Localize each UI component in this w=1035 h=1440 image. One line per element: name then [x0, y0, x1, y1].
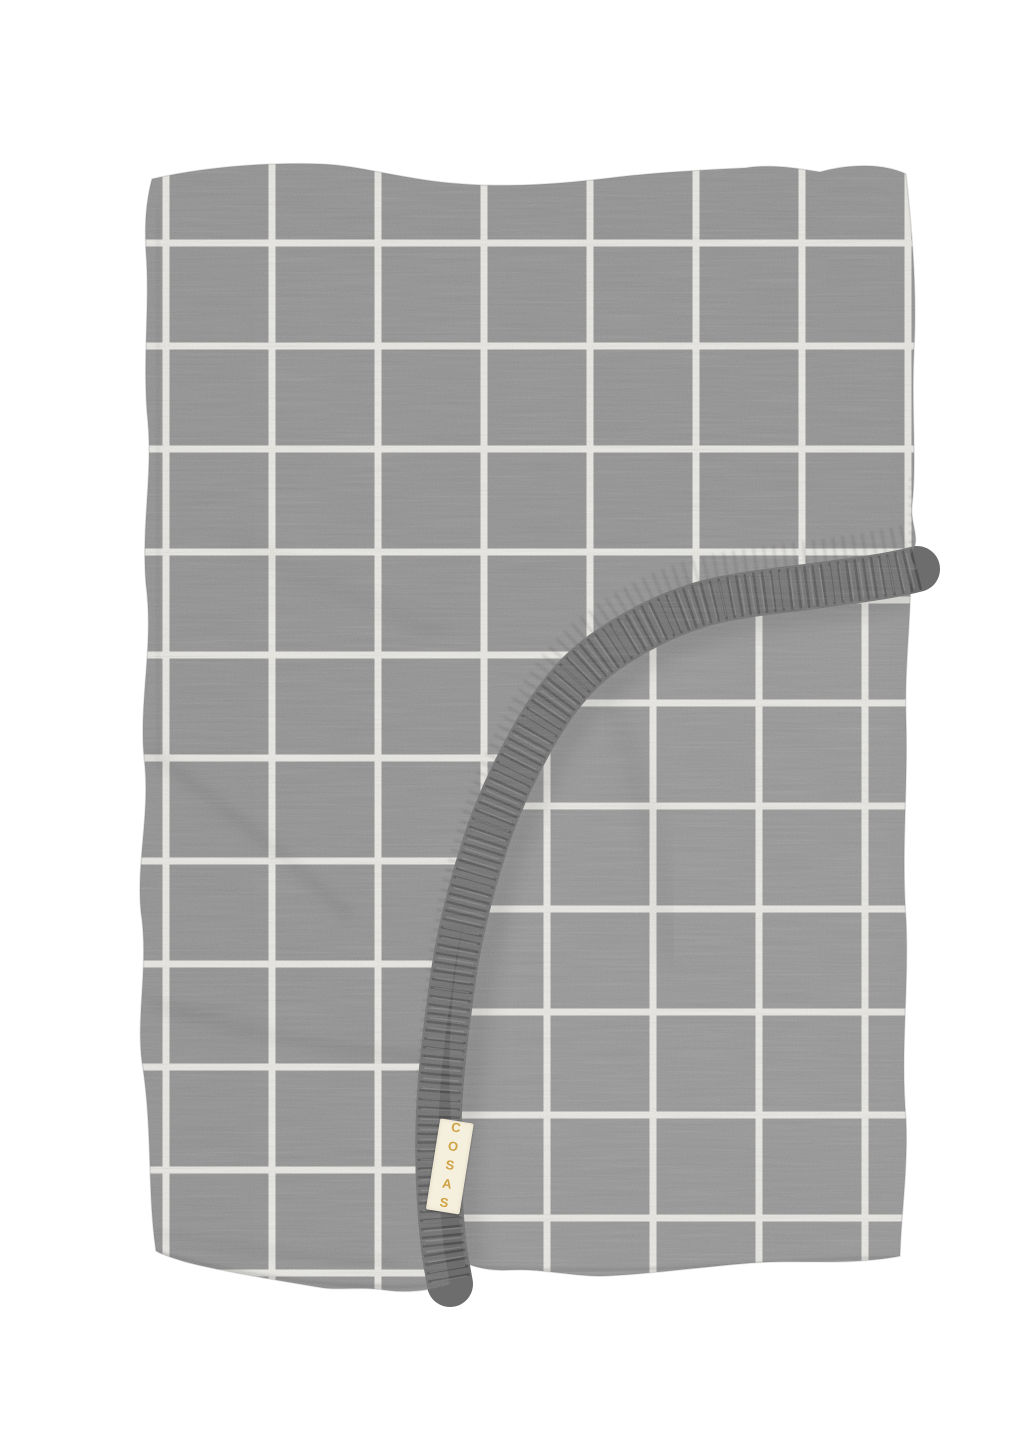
product-photo: COSAS — [0, 0, 1035, 1440]
texture-weave — [120, 150, 940, 1310]
fabric-texture — [120, 150, 940, 1310]
fitted-sheet-photo — [0, 0, 1035, 1440]
